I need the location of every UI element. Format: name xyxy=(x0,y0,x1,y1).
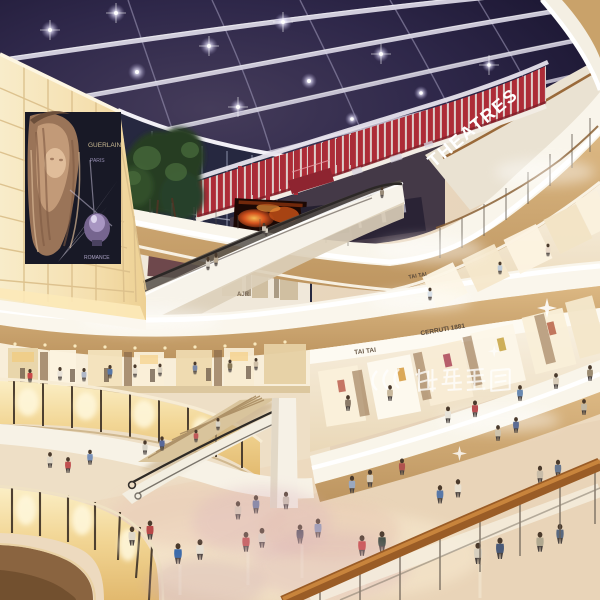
svg-text:GUERLAIN: GUERLAIN xyxy=(88,142,122,149)
svg-text:AJR: AJR xyxy=(237,292,250,298)
svg-text:ROMANCE: ROMANCE xyxy=(84,255,110,261)
svg-text:PARIS: PARIS xyxy=(90,158,105,164)
